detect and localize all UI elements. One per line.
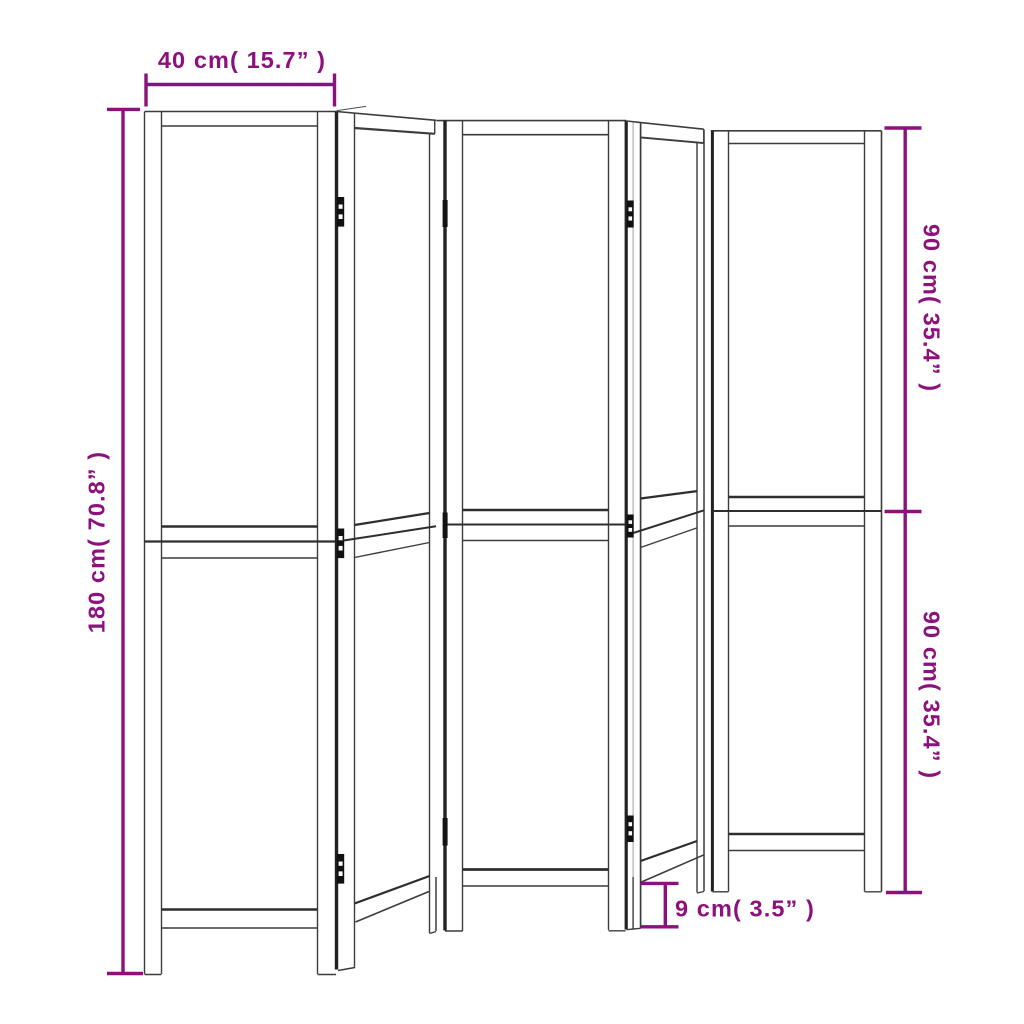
- svg-text:9 cm( 3.5” ): 9 cm( 3.5” ): [675, 896, 815, 922]
- svg-text:180 cm( 70.8” ): 180 cm( 70.8” ): [84, 451, 110, 633]
- svg-text:40 cm( 15.7” ): 40 cm( 15.7” ): [158, 47, 326, 73]
- svg-text:90 cm( 35.4” ): 90 cm( 35.4” ): [918, 611, 944, 779]
- svg-text:90 cm( 35.4” ): 90 cm( 35.4” ): [918, 224, 944, 392]
